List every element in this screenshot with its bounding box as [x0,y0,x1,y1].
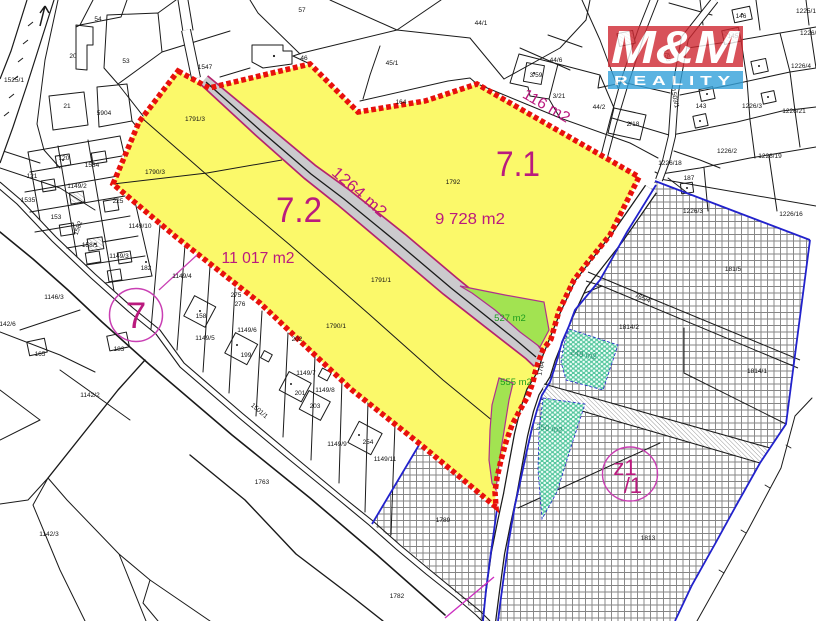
svg-text:/1: /1 [624,473,642,498]
svg-text:527 m2: 527 m2 [494,313,526,324]
svg-text:1813: 1813 [641,535,656,542]
svg-text:1782: 1782 [390,593,405,600]
svg-text:1792: 1792 [446,179,461,186]
svg-text:276: 276 [235,301,246,308]
svg-text:1534: 1534 [85,162,100,169]
svg-text:1791/3: 1791/3 [185,116,205,123]
svg-text:165: 165 [35,351,46,358]
svg-text:44/1: 44/1 [475,20,488,27]
svg-text:1226/21: 1226/21 [782,108,806,115]
svg-text:555 m2: 555 m2 [500,377,532,388]
svg-text:1790/1: 1790/1 [326,323,346,330]
svg-text:7: 7 [126,295,147,336]
svg-text:1789: 1789 [436,517,451,524]
svg-text:1146/3: 1146/3 [44,294,64,301]
svg-text:1547: 1547 [198,64,213,71]
svg-text:1226/2: 1226/2 [717,148,737,155]
svg-text:9 728 m2: 9 728 m2 [435,211,505,228]
svg-text:158/1: 158/1 [82,242,99,249]
svg-text:3/59: 3/59 [530,72,543,79]
svg-text:143: 143 [696,103,707,110]
svg-text:1149/11: 1149/11 [374,456,397,463]
svg-text:1149/8: 1149/8 [315,387,335,394]
svg-text:REALITY: REALITY [614,73,736,88]
svg-text:1525/1: 1525/1 [4,77,24,84]
svg-text:1814/1: 1814/1 [747,368,767,375]
svg-text:45/1: 45/1 [386,60,399,67]
svg-text:120: 120 [59,155,70,162]
svg-text:182: 182 [141,265,152,272]
svg-text:1226/16: 1226/16 [779,211,803,218]
svg-text:1149/7: 1149/7 [296,370,316,377]
svg-text:153: 153 [51,214,62,221]
svg-text:21: 21 [63,103,71,110]
svg-text:201: 201 [295,390,306,397]
svg-text:44/6: 44/6 [550,57,563,64]
svg-text:7.1: 7.1 [496,145,540,184]
svg-text:1226/19: 1226/19 [758,153,782,160]
svg-text:46: 46 [300,55,308,62]
svg-text:1149/10: 1149/10 [128,223,151,230]
svg-text:1142/6: 1142/6 [0,321,16,328]
svg-text:181/5: 181/5 [725,266,742,273]
svg-text:1225/1: 1225/1 [796,8,816,15]
svg-text:1226/5: 1226/5 [800,30,816,37]
svg-text:1226/3: 1226/3 [683,208,703,215]
svg-text:203: 203 [310,403,321,410]
svg-text:1790/3: 1790/3 [145,169,165,176]
svg-text:1814/2: 1814/2 [619,324,639,331]
svg-text:1149/9: 1149/9 [327,441,347,448]
svg-text:3/21: 3/21 [553,93,566,100]
svg-text:1226/3: 1226/3 [742,103,762,110]
svg-text:254: 254 [363,439,374,446]
svg-text:121: 121 [27,173,38,180]
svg-text:1142/3: 1142/3 [39,531,59,538]
svg-text:275: 275 [231,292,242,299]
svg-text:1149/5: 1149/5 [195,335,215,342]
svg-text:54: 54 [94,16,102,23]
svg-text:1791/1: 1791/1 [371,277,391,284]
svg-text:164: 164 [396,99,407,106]
svg-text:1149/4: 1149/4 [172,273,192,280]
svg-text:183: 183 [114,346,125,353]
svg-text:187: 187 [684,175,695,182]
svg-text:158: 158 [196,313,207,320]
svg-text:1149/2: 1149/2 [67,183,87,190]
svg-text:20: 20 [69,53,77,60]
svg-text:146: 146 [736,13,747,20]
svg-text:1142/2: 1142/2 [80,392,100,399]
svg-text:44/2: 44/2 [593,104,606,111]
svg-text:53: 53 [122,58,130,65]
svg-text:199: 199 [241,352,252,359]
svg-text:1763: 1763 [255,479,270,486]
svg-text:1226/18: 1226/18 [658,160,682,167]
svg-text:57: 57 [298,7,306,14]
svg-text:1535: 1535 [21,197,36,204]
svg-text:202: 202 [292,336,303,343]
svg-text:1149/6: 1149/6 [237,327,257,334]
svg-text:225: 225 [113,198,124,205]
svg-text:1149/3: 1149/3 [109,253,129,260]
svg-text:M&M: M&M [611,21,741,73]
svg-text:7.2: 7.2 [276,191,322,230]
svg-text:11 017 m2: 11 017 m2 [222,250,295,267]
svg-text:5904: 5904 [97,110,112,117]
svg-text:2/18: 2/18 [627,121,640,128]
svg-text:1226/4: 1226/4 [791,63,811,70]
